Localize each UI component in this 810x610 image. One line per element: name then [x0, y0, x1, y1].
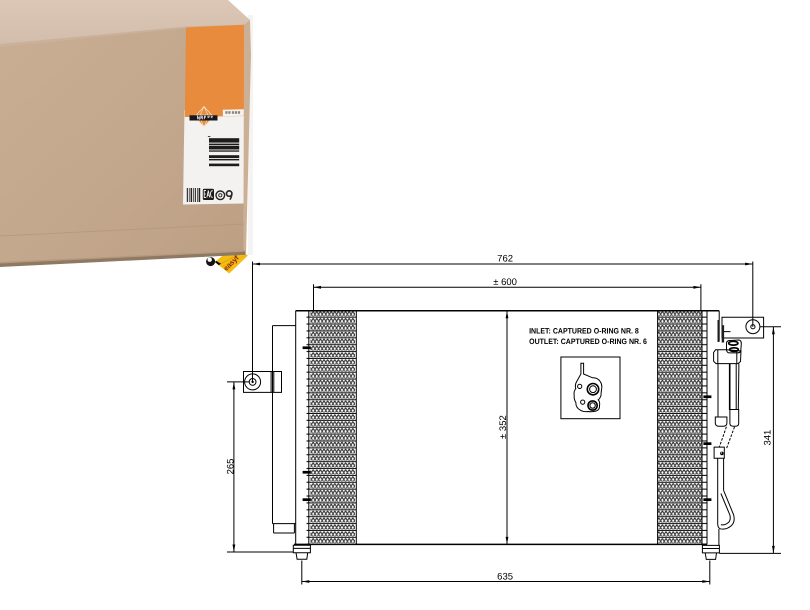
svg-text:341: 341 [762, 430, 773, 446]
svg-text:INLET: CAPTURED O-RING NR. 8: INLET: CAPTURED O-RING NR. 8 [529, 326, 639, 335]
svg-text:± 600: ± 600 [493, 277, 517, 288]
svg-text:± 352: ± 352 [498, 415, 509, 439]
svg-text:762: 762 [497, 254, 513, 265]
svg-text:635: 635 [497, 571, 513, 582]
svg-text:OUTLET: CAPTURED O-RING NR. 6: OUTLET: CAPTURED O-RING NR. 6 [529, 337, 647, 346]
svg-text:265: 265 [226, 459, 237, 475]
